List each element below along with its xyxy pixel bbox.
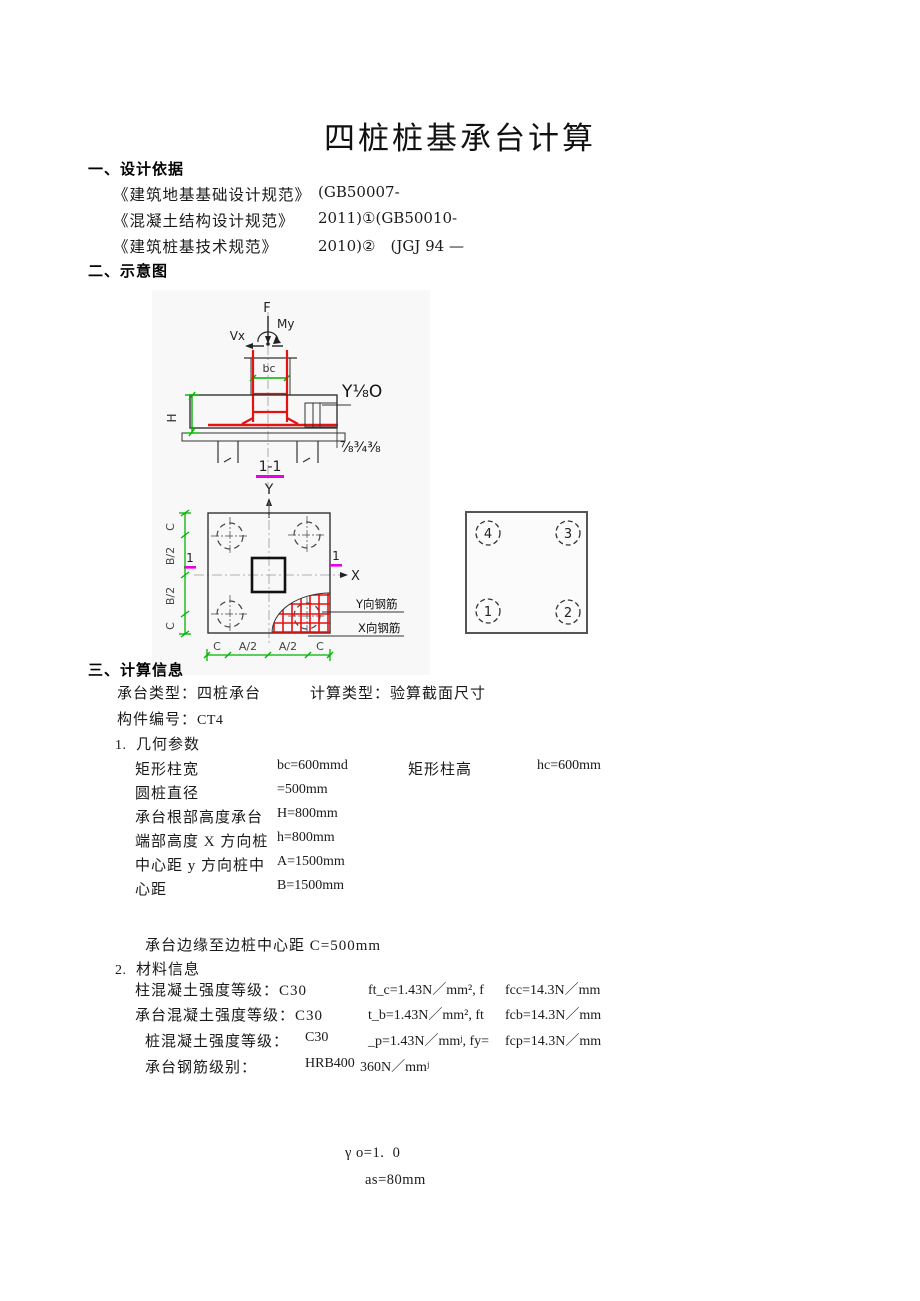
load-point (266, 342, 270, 346)
figure-background (152, 290, 430, 675)
param-value: A=1500mm (277, 854, 345, 870)
material-label: 柱混凝土强度等级：C30 (135, 979, 307, 1000)
material-formula: _p=1.43N／mmʲ, fy= (368, 1030, 489, 1050)
svg-text:C: C (164, 523, 177, 531)
svg-text:A/2: A/2 (239, 640, 257, 653)
material-label: 桩混凝土强度等级： (145, 1030, 289, 1051)
geometry-title: 几何参数 (136, 737, 200, 753)
rebar-y-label: Y向钢筋 (355, 597, 398, 611)
section-mark-label: 1-1 (259, 459, 282, 475)
section-heading-calc-info: 三、计算信息 (88, 659, 184, 680)
section-note-top: Y⅛O (341, 382, 382, 402)
moment-label: My (277, 317, 294, 331)
cut-mark-right: 1 (332, 549, 340, 563)
svg-text:A/2: A/2 (279, 640, 297, 653)
reference-code: 2011)①(GB50010- (318, 209, 457, 227)
param-value: H=800mm (277, 806, 338, 822)
param-label: 端部高度 X 方向桩 (135, 830, 268, 851)
material-label: 承台混凝土强度等级：C30 (135, 1004, 323, 1025)
section-mark-underline (256, 475, 284, 478)
geometry-row: 端部高度 X 方向桩 h=800mm (0, 830, 920, 852)
member-label: 构件编号： (117, 712, 197, 728)
cut-mark-left-underline (184, 566, 196, 569)
geometry-row: 矩形柱宽 bc=600mmd 矩形柱高 hc=600mm (0, 758, 920, 780)
page-title: 四桩桩基承台计算 (0, 113, 920, 158)
as-line: as=80mm (365, 1172, 426, 1189)
param-label: 承台根部高度承台 (135, 806, 263, 827)
param-value: B=1500mm (277, 878, 344, 894)
material-label: 承台钢筋级别： (145, 1056, 257, 1077)
geometry-heading: 1. 几何参数 (115, 733, 200, 754)
document-page: 四桩桩基承台计算 一、设计依据 《建筑地基基础设计规范》 (GB50007- 《… (0, 0, 920, 1301)
geometry-row: 圆桩直径 =500mm (0, 782, 920, 804)
cap-height-label: H (165, 413, 179, 422)
calc-type-label: 计算类型： (310, 686, 390, 702)
member-value: CT4 (197, 713, 223, 728)
column-width-label: bc (262, 362, 275, 375)
materials-heading: 2. 材料信息 (115, 958, 200, 979)
material-row: 柱混凝土强度等级：C30 ft_c=1.43N／mm², f fcc=14.3N… (0, 979, 920, 1001)
material-row: 桩混凝土强度等级： C30 _p=1.43N／mmʲ, fy= fcp=14.3… (0, 1030, 920, 1052)
geometry-row: 中心距 y 方向桩中 A=1500mm (0, 854, 920, 876)
material-formula: t_b=1.43N／mm², ft (368, 1004, 484, 1024)
force-label: F (263, 301, 270, 316)
gamma-line: γ o=1. 0 (345, 1145, 400, 1162)
param-label: 圆桩直径 (135, 782, 199, 803)
param-value: =500mm (277, 782, 328, 798)
pile-number: 1 (484, 605, 492, 620)
reference-name: 《混凝土结构设计规范》 (113, 209, 295, 231)
reference-name: 《建筑桩基技术规范》 (113, 235, 278, 257)
calc-type-line: 计算类型：验算截面尺寸 (310, 682, 486, 703)
member-line: 构件编号：CT4 (117, 708, 223, 729)
axis-x-label: X (351, 569, 360, 584)
material-formula: 360N／mmʲ (360, 1056, 429, 1076)
section-heading-schematic: 二、示意图 (88, 260, 168, 281)
section-heading-design-basis: 一、设计依据 (88, 158, 184, 179)
svg-text:C: C (316, 640, 324, 653)
svg-text:C: C (164, 622, 177, 630)
cap-type-line: 承台类型：四桩承台 (117, 682, 261, 703)
reference-code: (GB50007- (318, 183, 400, 201)
cut-mark-left: 1 (186, 551, 194, 565)
pile-number-layout: 4 3 1 2 (466, 512, 587, 633)
pile-number: 4 (484, 527, 492, 542)
param-value: bc=600mmd (277, 758, 348, 774)
material-fvalue: fcc=14.3N／mm (505, 979, 600, 999)
pile-number: 2 (564, 606, 572, 621)
geometry-row: 承台根部高度承台 H=800mm (0, 806, 920, 828)
section-note-bottom: ⅞¾⅜ (340, 440, 381, 456)
material-row: 承台钢筋级别： HRB400 360N／mmʲ (0, 1056, 920, 1078)
reference-row: 《混凝土结构设计规范》 2011)①(GB50010- (0, 209, 920, 233)
cap-type-value: 四桩承台 (197, 686, 261, 702)
material-grade: HRB400 (305, 1056, 355, 1072)
reference-code: 2010)② (JGJ 94 — (318, 235, 464, 256)
axis-y-label: Y (264, 482, 274, 498)
svg-text:B/2: B/2 (164, 547, 177, 565)
materials-title: 材料信息 (136, 962, 200, 978)
reference-row: 《建筑桩基技术规范》 2010)② (JGJ 94 — (0, 235, 920, 259)
pile-number: 3 (564, 527, 572, 542)
param-label: 心距 (135, 878, 167, 899)
param-label: 矩形柱宽 (135, 758, 199, 779)
material-fvalue: fcb=14.3N／mm (505, 1004, 601, 1024)
param-label: 中心距 y 方向桩中 (135, 854, 265, 875)
material-formula: ft_c=1.43N／mm², f (368, 979, 484, 999)
schematic-figure: F My Vx bc (150, 290, 640, 675)
cap-type-label: 承台类型： (117, 686, 197, 702)
materials-number: 2. (115, 963, 127, 978)
material-grade: C30 (305, 1030, 328, 1046)
param-value: hc=600mm (537, 758, 601, 774)
edge-distance-note: 承台边缘至边桩中心距 C=500mm (145, 934, 381, 955)
reference-row: 《建筑地基基础设计规范》 (GB50007- (0, 183, 920, 207)
rebar-x-label: X向钢筋 (358, 621, 400, 635)
calc-type-value: 验算截面尺寸 (390, 686, 486, 702)
param-label: 矩形柱高 (408, 758, 472, 779)
svg-text:C: C (213, 640, 221, 653)
reference-name: 《建筑地基基础设计规范》 (113, 183, 311, 205)
geometry-row: 心距 B=1500mm (0, 878, 920, 900)
svg-text:B/2: B/2 (164, 587, 177, 605)
geometry-number: 1. (115, 738, 127, 753)
cut-mark-right-underline (330, 564, 342, 567)
param-value: h=800mm (277, 830, 335, 846)
material-fvalue: fcp=14.3N／mm (505, 1030, 601, 1050)
shear-label: Vx (230, 329, 245, 343)
material-row: 承台混凝土强度等级：C30 t_b=1.43N／mm², ft fcb=14.3… (0, 1004, 920, 1026)
